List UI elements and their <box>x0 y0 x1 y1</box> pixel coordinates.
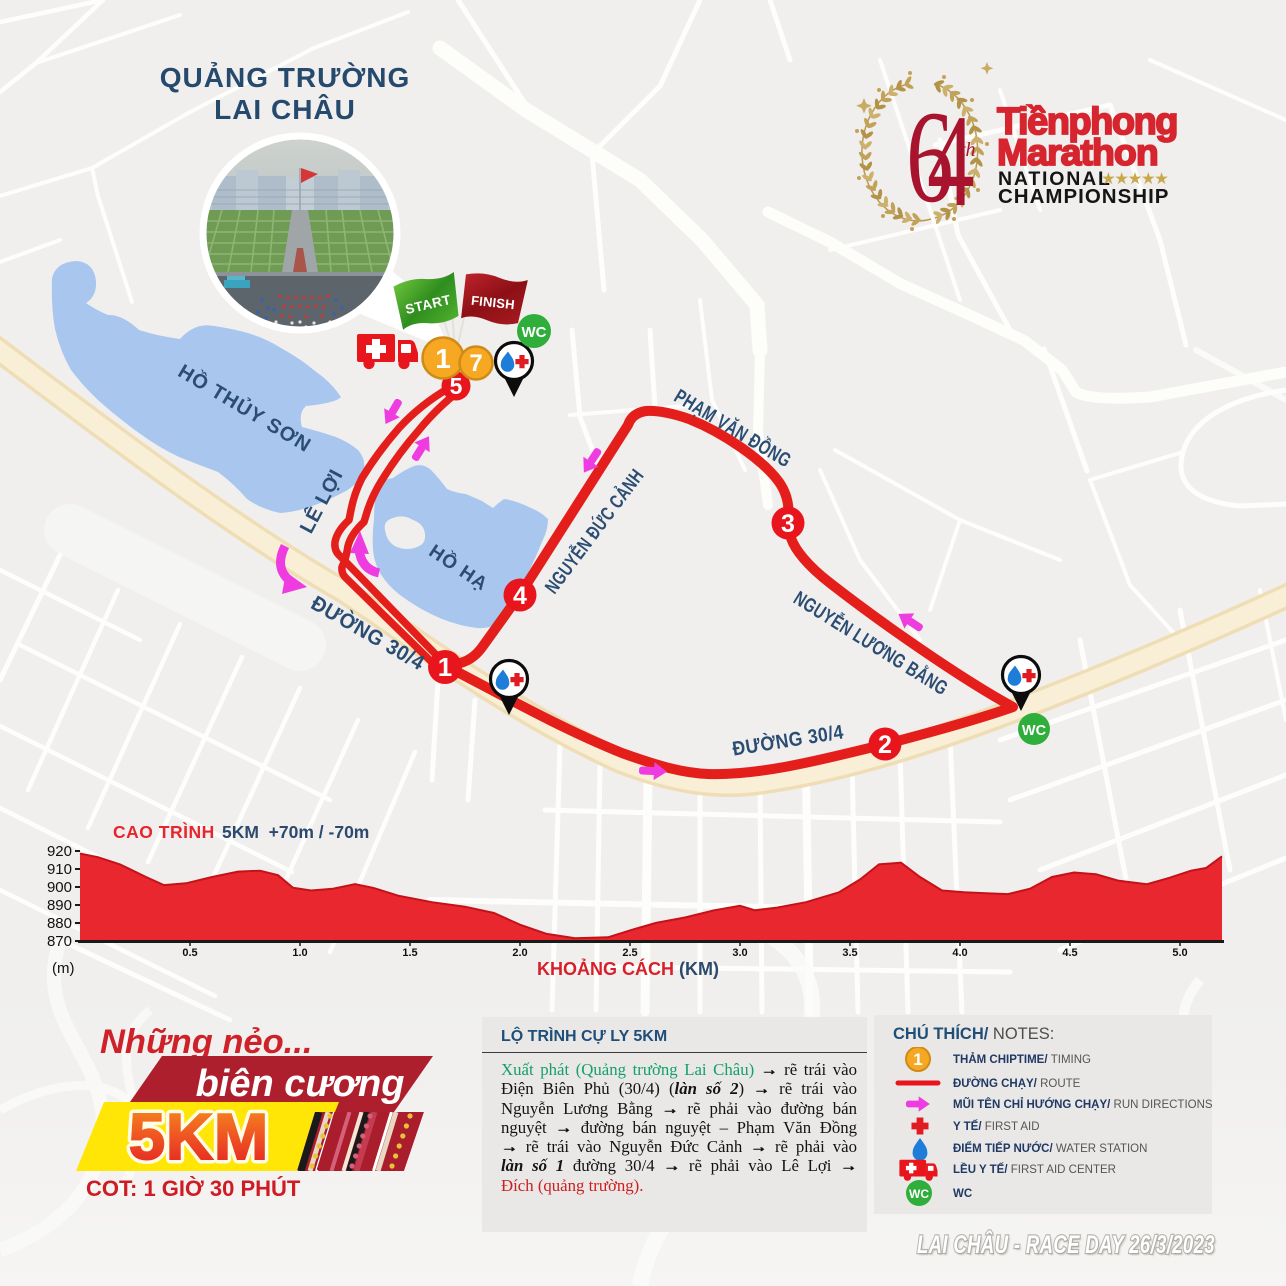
svg-text:1: 1 <box>438 652 452 682</box>
svg-text:7: 7 <box>469 350 482 377</box>
svg-text:900: 900 <box>47 879 72 896</box>
svg-text:870: 870 <box>47 933 72 950</box>
svg-text:1.0: 1.0 <box>292 947 307 959</box>
svg-text:CHAMPIONSHIP: CHAMPIONSHIP <box>998 185 1169 208</box>
svg-text:1: 1 <box>435 343 451 374</box>
svg-text:2: 2 <box>878 731 892 759</box>
svg-text:4.5: 4.5 <box>1062 947 1077 959</box>
svg-text:THẢM CHIPTIME/ TIMING: THẢM CHIPTIME/ TIMING <box>953 1053 1091 1066</box>
svg-text:3.0: 3.0 <box>732 947 747 959</box>
svg-text:1: 1 <box>913 1050 922 1069</box>
svg-text:WC: WC <box>909 1187 929 1201</box>
svg-text:ĐIỂM TIẾP NƯỚC/ WATER STATION: ĐIỂM TIẾP NƯỚC/ WATER STATION <box>953 1142 1147 1155</box>
svg-text:4.0: 4.0 <box>952 947 967 959</box>
svg-text:890: 890 <box>47 897 72 914</box>
svg-text:5.0: 5.0 <box>1172 947 1187 959</box>
svg-text:Marathon: Marathon <box>997 131 1158 173</box>
svg-text:Những nẻo...: Những nẻo... <box>100 1023 312 1061</box>
svg-text:CAO TRÌNH: CAO TRÌNH <box>113 821 215 842</box>
svg-text:4: 4 <box>513 582 527 610</box>
svg-text:MŨI TÊN CHỈ HƯỚNG CHẠY/ RUN DI: MŨI TÊN CHỈ HƯỚNG CHẠY/ RUN DIRECTIONS <box>953 1098 1212 1111</box>
svg-text:(m): (m) <box>52 960 75 977</box>
svg-text:2.0: 2.0 <box>512 947 527 959</box>
svg-text:WC: WC <box>953 1188 972 1200</box>
svg-text:2.5: 2.5 <box>622 947 637 959</box>
svg-text:910: 910 <box>47 861 72 878</box>
svg-text:biên cương: biên cương <box>196 1063 405 1105</box>
svg-text:ĐƯỜNG CHẠY/ ROUTE: ĐƯỜNG CHẠY/ ROUTE <box>953 1077 1081 1090</box>
svg-text:3.5: 3.5 <box>842 947 857 959</box>
svg-text:LỀU Y TẾ/ FIRST AID CENTER: LỀU Y TẾ/ FIRST AID CENTER <box>953 1163 1116 1176</box>
svg-text:WC: WC <box>522 324 547 341</box>
svg-text:COT: 1 GIỜ 30 PHÚT: COT: 1 GIỜ 30 PHÚT <box>86 1176 301 1201</box>
svg-text:0.5: 0.5 <box>182 947 197 959</box>
svg-text:1.5: 1.5 <box>402 947 417 959</box>
svg-text:920: 920 <box>47 843 72 860</box>
svg-text:3: 3 <box>781 510 795 538</box>
svg-text:Y TẾ/ FIRST AID: Y TẾ/ FIRST AID <box>953 1120 1040 1133</box>
svg-text:5KM +70m / -70m: 5KM +70m / -70m <box>222 822 369 842</box>
svg-text:880: 880 <box>47 915 72 932</box>
svg-text:5KM: 5KM <box>129 1100 269 1173</box>
svg-text:WC: WC <box>1022 723 1047 739</box>
svg-text:th: th <box>960 139 976 161</box>
svg-text:KHOẢNG CÁCH (KM): KHOẢNG CÁCH (KM) <box>537 958 719 979</box>
